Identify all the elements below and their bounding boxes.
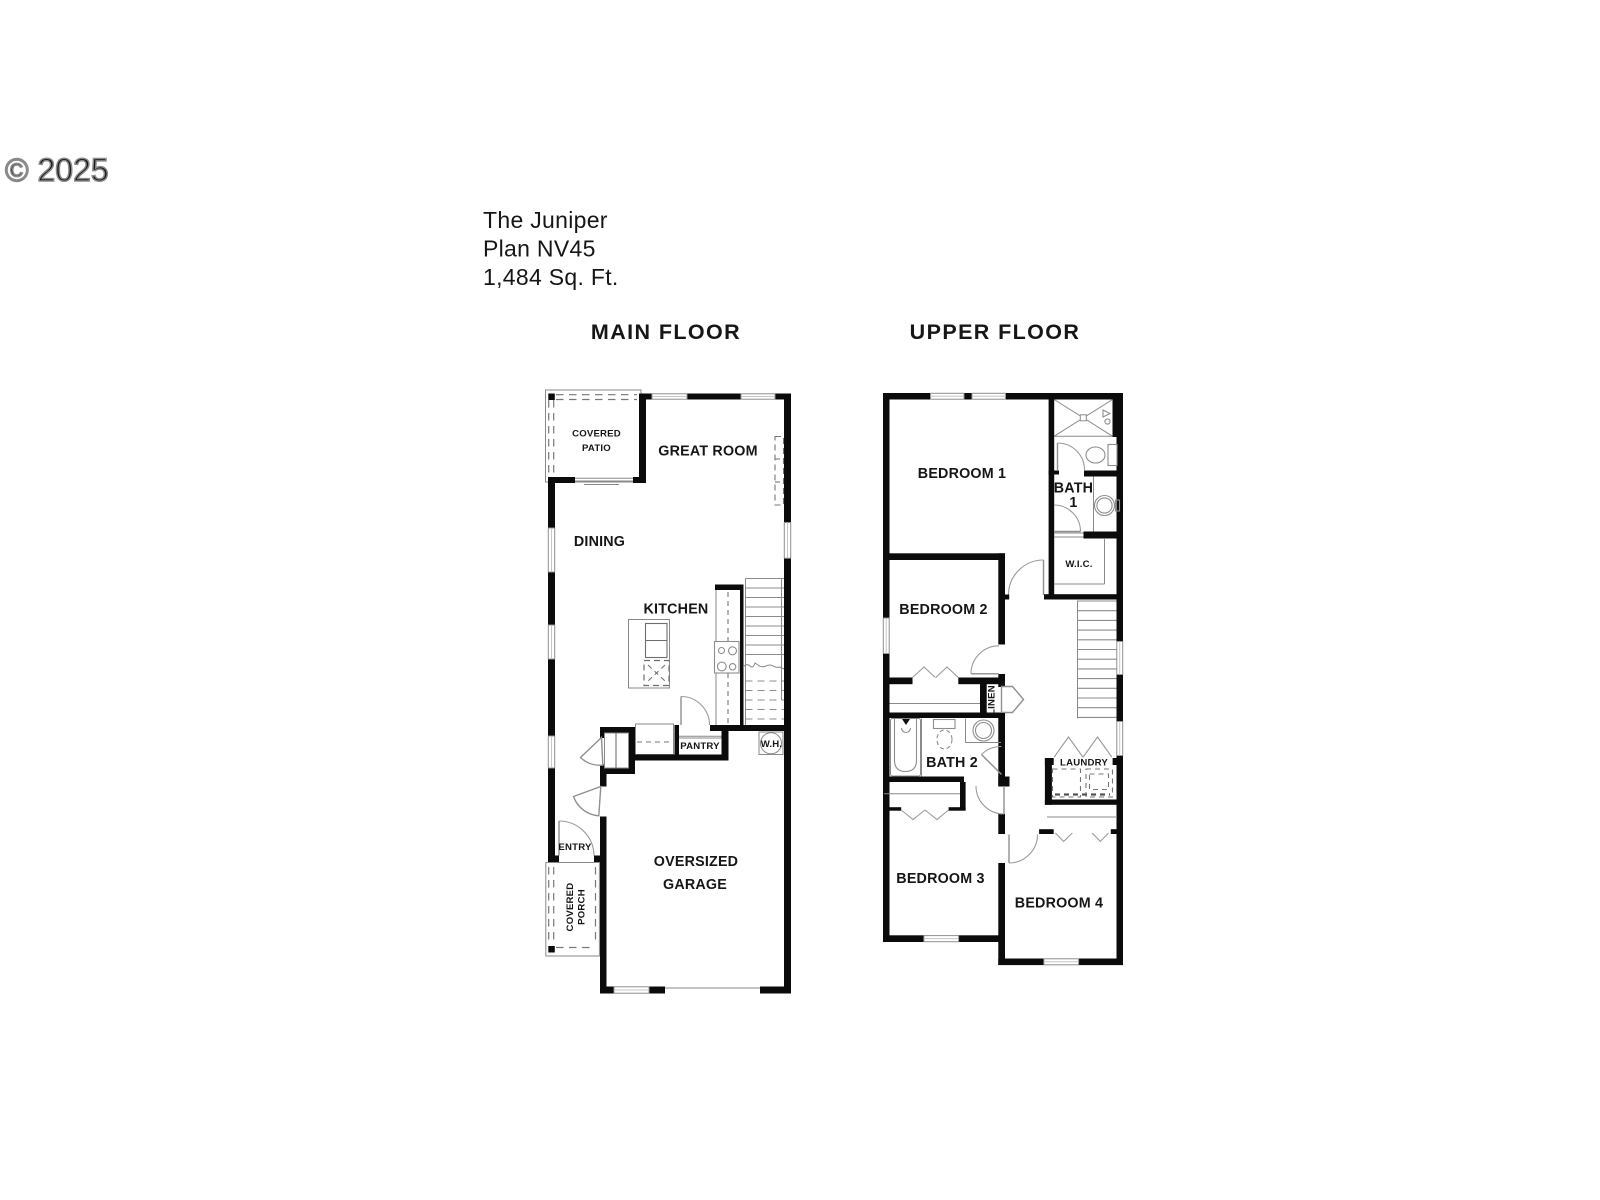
svg-text:LAUNDRY: LAUNDRY xyxy=(1060,758,1108,769)
svg-text:LINEN: LINEN xyxy=(987,685,998,715)
svg-text:PATIO: PATIO xyxy=(582,443,611,454)
svg-text:BEDROOM 3: BEDROOM 3 xyxy=(896,871,984,887)
svg-text:ENTRY: ENTRY xyxy=(558,842,592,853)
svg-text:1,484 Sq. Ft.: 1,484 Sq. Ft. xyxy=(483,264,619,290)
svg-text:The Juniper: The Juniper xyxy=(483,207,608,233)
svg-text:OVERSIZED: OVERSIZED xyxy=(654,854,738,870)
svg-text:BEDROOM 4: BEDROOM 4 xyxy=(1015,896,1103,912)
svg-text:KITCHEN: KITCHEN xyxy=(644,602,709,618)
svg-text:DINING: DINING xyxy=(574,534,625,550)
svg-text:GREAT ROOM: GREAT ROOM xyxy=(658,444,757,460)
svg-text:COVERED: COVERED xyxy=(572,429,621,440)
svg-text:© 2025: © 2025 xyxy=(5,152,109,188)
svg-text:Plan NV45: Plan NV45 xyxy=(483,236,596,262)
svg-text:MAIN FLOOR: MAIN FLOOR xyxy=(591,320,741,344)
svg-text:GARAGE: GARAGE xyxy=(663,877,727,893)
svg-text:BEDROOM 2: BEDROOM 2 xyxy=(899,602,987,618)
svg-text:PORCH: PORCH xyxy=(577,889,588,925)
svg-text:BEDROOM 1: BEDROOM 1 xyxy=(918,466,1006,482)
svg-text:BATH 2: BATH 2 xyxy=(926,755,978,771)
svg-text:W.I.C.: W.I.C. xyxy=(1065,559,1092,570)
svg-text:1: 1 xyxy=(1069,495,1077,511)
svg-text:PANTRY: PANTRY xyxy=(680,741,720,752)
svg-text:COVERED: COVERED xyxy=(565,883,576,932)
svg-text:UPPER FLOOR: UPPER FLOOR xyxy=(910,320,1081,344)
svg-text:W.H.: W.H. xyxy=(761,739,783,750)
